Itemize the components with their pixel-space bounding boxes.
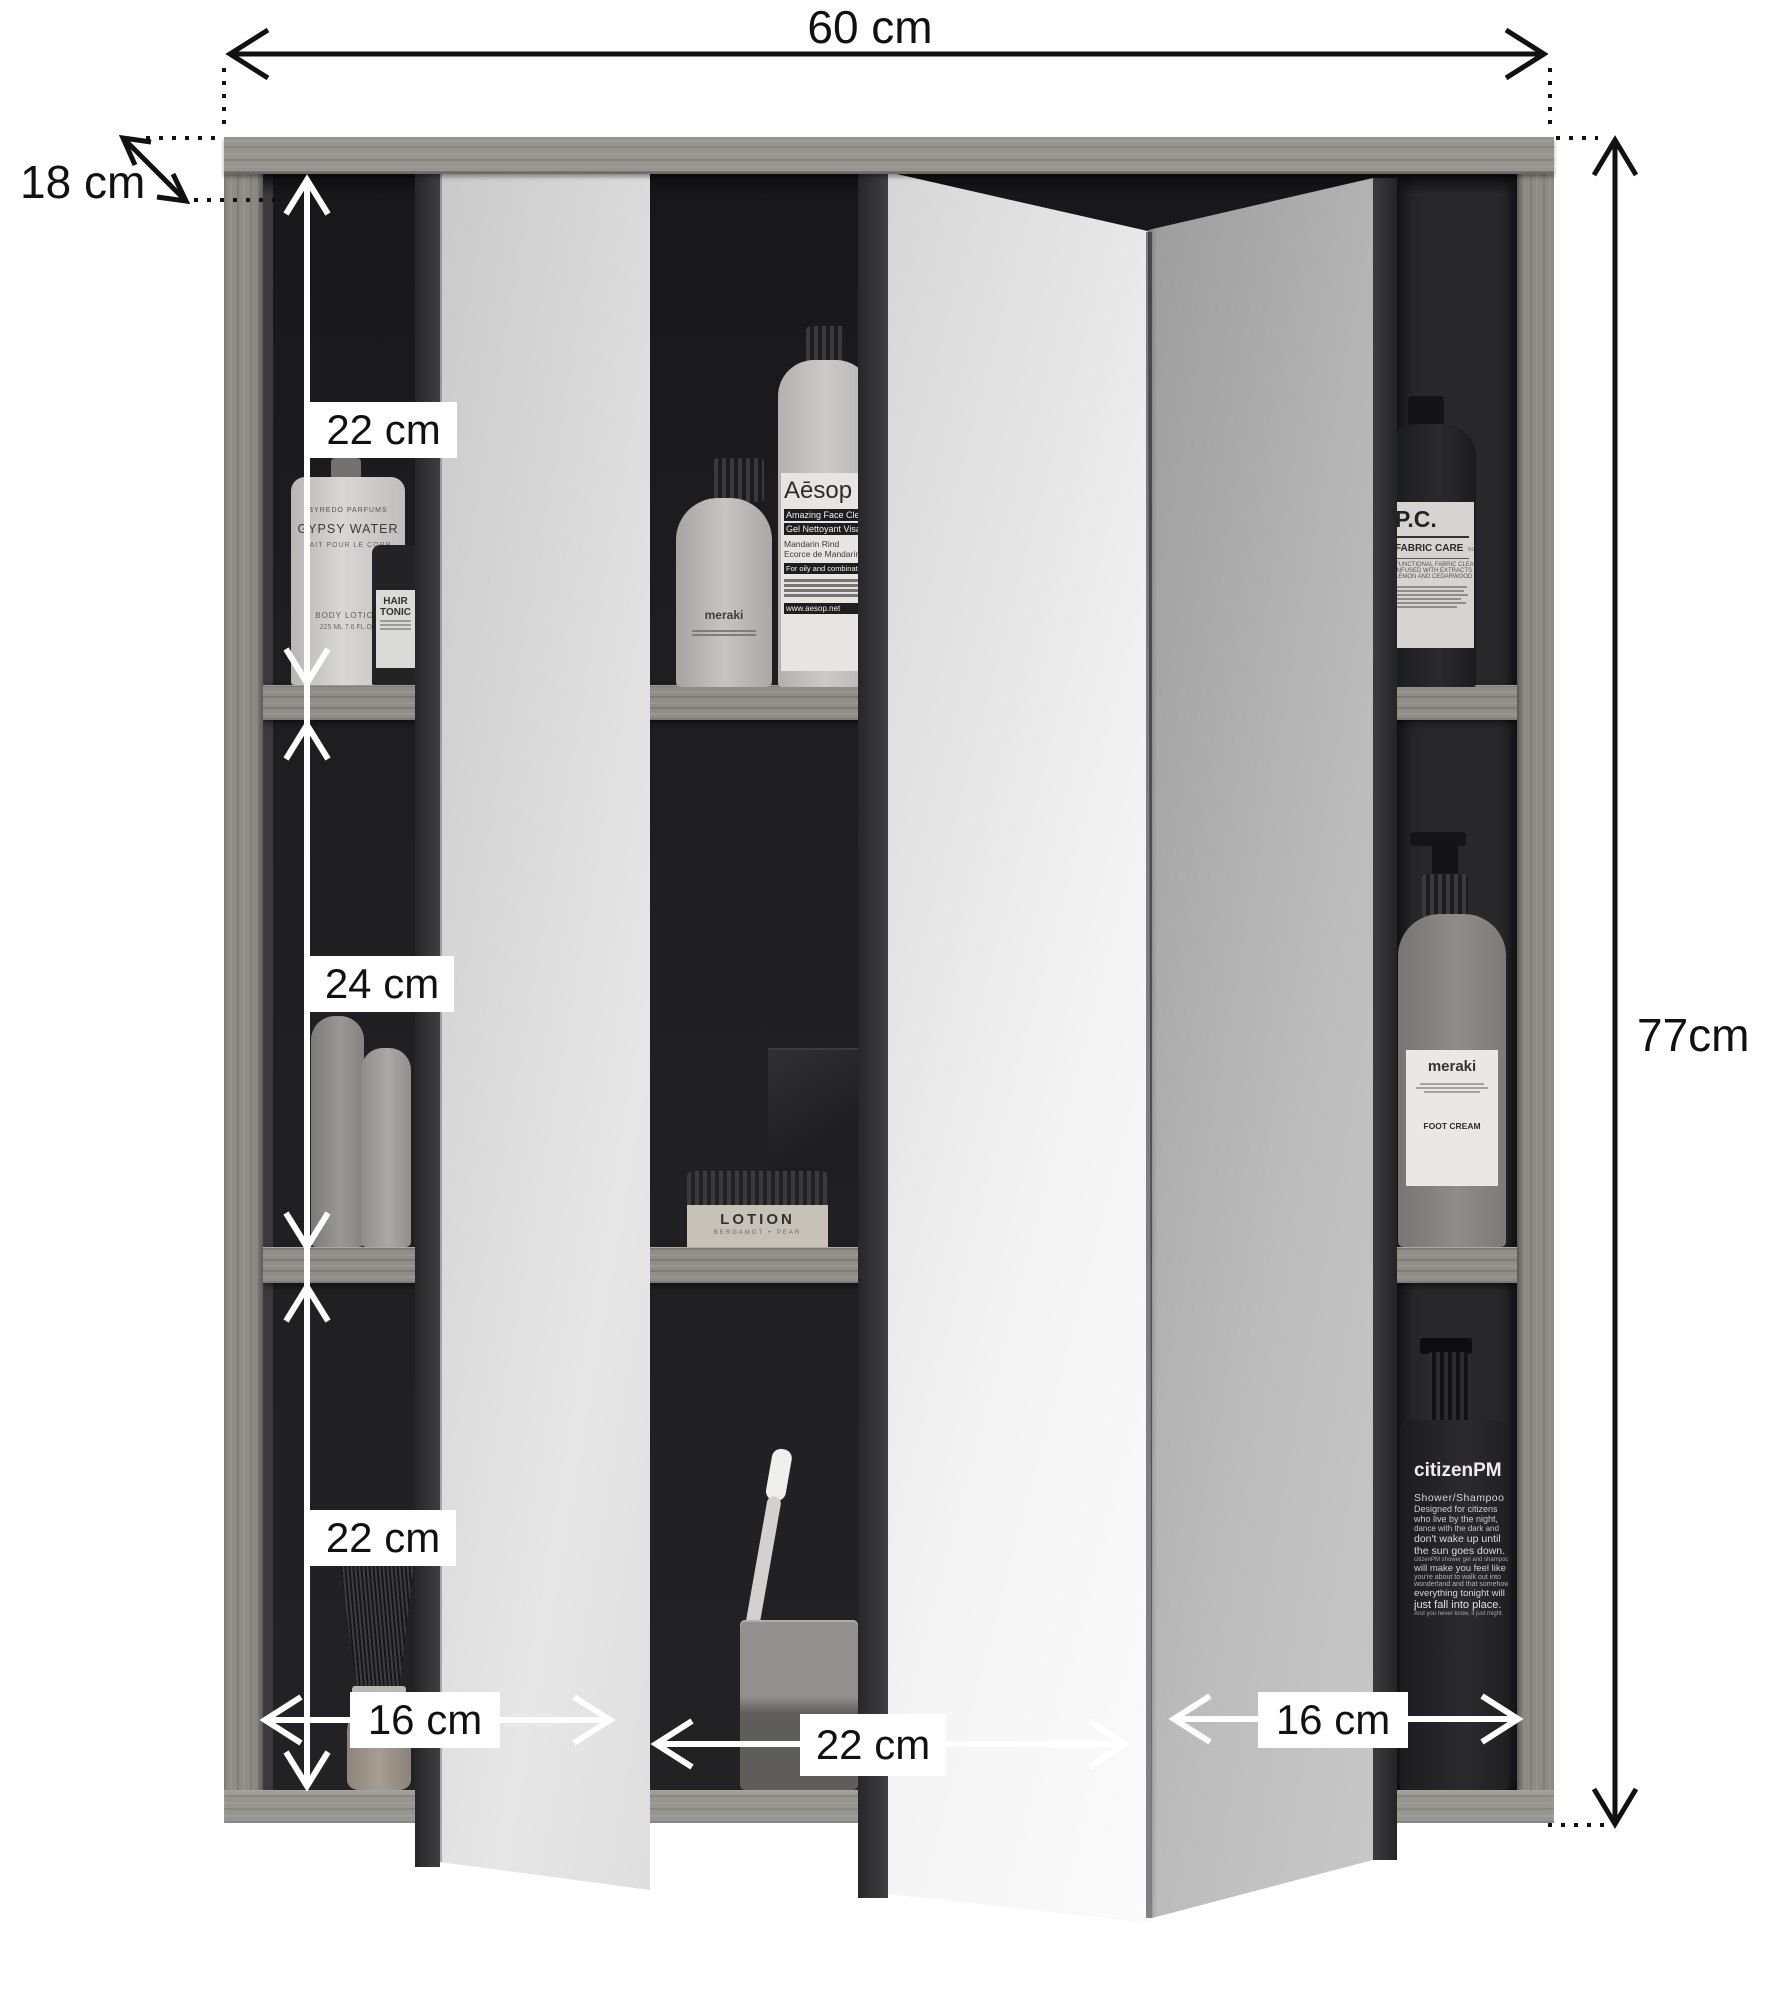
compartment-width-label-left: 16 cm xyxy=(350,1692,500,1748)
shelf-height-label-middle: 24 cm xyxy=(310,956,454,1012)
compartment-width-label-right: 16 cm xyxy=(1258,1692,1408,1748)
dimension-arrows xyxy=(0,0,1787,2012)
shelf-height-label-bottom: 22 cm xyxy=(310,1510,456,1566)
compartment-width-label-middle: 22 cm xyxy=(800,1714,946,1776)
depth-dimension-label: 18 cm xyxy=(20,155,145,209)
mirror-cabinet-dimension-diagram: BYREDO PARFUMS GYPSY WATER LAIT POUR LE … xyxy=(0,0,1787,2012)
shelf-height-label-top: 22 cm xyxy=(310,402,457,458)
width-dimension-label: 60 cm xyxy=(750,0,990,54)
height-dimension-label: 77cm xyxy=(1637,1008,1749,1062)
